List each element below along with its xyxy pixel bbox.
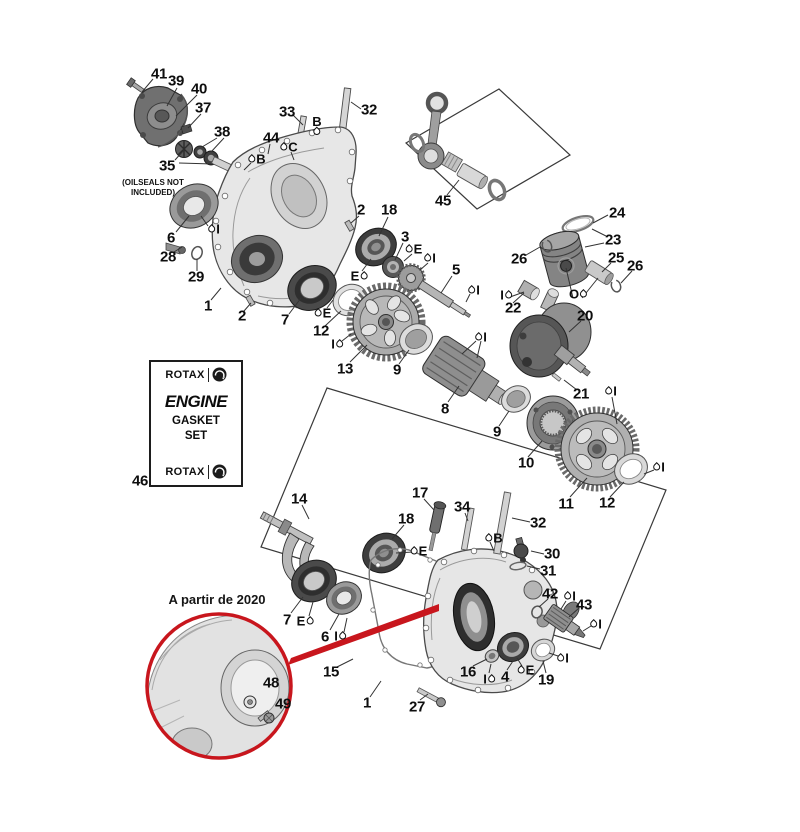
part-label-23: 23 bbox=[605, 232, 621, 249]
lube-mark-B: B bbox=[248, 153, 265, 166]
oil-drop-icon bbox=[467, 285, 477, 295]
lube-letter: C bbox=[288, 141, 297, 154]
oil-drop-icon bbox=[579, 289, 589, 299]
rod-shaft bbox=[428, 111, 441, 146]
part-label-40: 40 bbox=[191, 81, 207, 98]
oil-drop-icon bbox=[484, 533, 494, 543]
divider bbox=[208, 465, 209, 479]
part-label-38: 38 bbox=[214, 124, 230, 141]
lube-mark-I: I bbox=[653, 461, 665, 474]
part-label-44: 44 bbox=[263, 130, 279, 147]
lube-mark-I: I bbox=[564, 590, 576, 603]
oil-drop-icon bbox=[486, 674, 496, 684]
part-label-20: 20 bbox=[577, 308, 593, 325]
part-label-18: 18 bbox=[381, 202, 397, 219]
oil-drop-icon bbox=[359, 271, 369, 281]
lube-letter: B bbox=[493, 532, 502, 545]
part-label-25: 25 bbox=[608, 250, 624, 267]
lube-letter: E bbox=[323, 307, 332, 320]
part-label-4: 4 bbox=[501, 669, 509, 686]
lube-mark-E: E bbox=[411, 545, 428, 558]
oil-drop-icon bbox=[305, 616, 315, 626]
lube-letter: E bbox=[419, 545, 428, 558]
lube-mark-E: E bbox=[406, 243, 423, 256]
pushrod-17 bbox=[424, 501, 446, 552]
part-label-34: 34 bbox=[454, 499, 470, 516]
crank-pin bbox=[456, 163, 489, 190]
lube-letter: I bbox=[216, 223, 220, 236]
lube-letter: O bbox=[569, 288, 579, 301]
oil-drop-icon bbox=[334, 339, 344, 349]
oil-drop-icon bbox=[313, 308, 323, 318]
part-label-5: 5 bbox=[452, 262, 460, 279]
oil-drop-icon bbox=[423, 253, 433, 263]
lube-letter: I bbox=[598, 618, 602, 631]
lube-mark-I: I bbox=[557, 652, 569, 665]
oil-drop-icon bbox=[337, 631, 347, 641]
part-label-7: 7 bbox=[281, 312, 289, 329]
lube-letter: I bbox=[483, 331, 487, 344]
part-label-15: 15 bbox=[323, 664, 339, 681]
thrust-washer-left bbox=[408, 132, 426, 153]
part-label-48: 48 bbox=[263, 675, 279, 692]
part-label-1: 1 bbox=[204, 298, 212, 315]
lube-mark-C: C bbox=[280, 141, 297, 154]
gasket-box-footer: ROTAX bbox=[154, 464, 238, 479]
part-label-22: 22 bbox=[505, 300, 521, 317]
oilseals-note-line1: (OILSEALS NOT bbox=[106, 178, 200, 188]
part-label-16: 16 bbox=[460, 664, 476, 681]
gasket-set-kit-card: ROTAX ENGINE GASKET SET ROTAX bbox=[149, 360, 243, 487]
part-label-35: 35 bbox=[159, 158, 175, 175]
lube-letter: I bbox=[334, 630, 338, 643]
part-label-6: 6 bbox=[321, 629, 329, 646]
part-label-33: 33 bbox=[279, 104, 295, 121]
woodruff-key-21 bbox=[552, 373, 561, 381]
part-label-18: 18 bbox=[398, 511, 414, 528]
lube-mark-E: E bbox=[351, 270, 368, 283]
part-label-7: 7 bbox=[283, 612, 291, 629]
lube-letter: E bbox=[297, 615, 306, 628]
part-label-32: 32 bbox=[361, 102, 377, 119]
lube-letter: E bbox=[526, 664, 535, 677]
divider bbox=[208, 368, 209, 382]
part-label-17: 17 bbox=[412, 485, 428, 502]
part-label-27: 27 bbox=[409, 699, 425, 716]
gasket-kit-subtitle2: SET bbox=[185, 430, 207, 442]
detail-pointer-line bbox=[288, 604, 439, 665]
lube-letter: I bbox=[331, 338, 335, 351]
cover-center bbox=[155, 110, 169, 122]
oil-drop-icon bbox=[409, 546, 419, 556]
lube-mark-I: I bbox=[500, 289, 512, 302]
part-label-12: 12 bbox=[313, 323, 329, 340]
lube-letter: I bbox=[572, 590, 576, 603]
lube-mark-E: E bbox=[315, 307, 332, 320]
lube-letter: I bbox=[500, 289, 504, 302]
lube-mark-O: O bbox=[569, 288, 587, 301]
part-label-32: 32 bbox=[530, 515, 546, 532]
lube-letter: I bbox=[476, 284, 480, 297]
gasket-box-header: ROTAX bbox=[154, 367, 238, 382]
part-label-39: 39 bbox=[168, 73, 184, 90]
lube-mark-E: E bbox=[297, 615, 314, 628]
part-label-14: 14 bbox=[291, 491, 307, 508]
lube-mark-I: I bbox=[468, 284, 480, 297]
part-label-49: 49 bbox=[275, 696, 291, 713]
oilseals-note: (OILSEALS NOT INCLUDED) bbox=[106, 178, 200, 198]
lube-mark-I: I bbox=[590, 618, 602, 631]
part-label-13: 13 bbox=[337, 361, 353, 378]
lube-mark-I: I bbox=[424, 252, 436, 265]
part-label-29: 29 bbox=[188, 269, 204, 286]
part-label-9: 9 bbox=[493, 424, 501, 441]
lube-mark-I: I bbox=[475, 331, 487, 344]
part-label-43: 43 bbox=[576, 597, 592, 614]
part-label-9: 9 bbox=[393, 362, 401, 379]
rotax-logo-icon bbox=[212, 464, 227, 479]
rotax-logo-icon bbox=[212, 367, 227, 382]
lube-letter: E bbox=[414, 243, 423, 256]
needle-bearing bbox=[442, 152, 463, 172]
part-label-26: 26 bbox=[511, 251, 527, 268]
part-label-8: 8 bbox=[441, 401, 449, 418]
year-applicability-note: A partir de 2020 bbox=[156, 592, 278, 607]
oil-drop-icon bbox=[247, 154, 257, 164]
gasket-kit-title: ENGINE bbox=[165, 392, 227, 412]
part-label-12: 12 bbox=[599, 495, 615, 512]
crank-bore-hub bbox=[249, 252, 265, 266]
part-label-21: 21 bbox=[573, 386, 589, 403]
lube-letter: I bbox=[565, 652, 569, 665]
lube-letter: I bbox=[661, 461, 665, 474]
oil-drop-icon bbox=[207, 224, 217, 234]
exploded-parts-drawing bbox=[0, 0, 800, 832]
pump-bearing-a-bore bbox=[197, 149, 203, 155]
part-label-10: 10 bbox=[518, 455, 534, 472]
oil-drop-icon bbox=[516, 665, 526, 675]
o-ring-29 bbox=[190, 245, 204, 261]
lube-letter: B bbox=[256, 153, 265, 166]
part-label-1: 1 bbox=[363, 695, 371, 712]
lube-letter: E bbox=[351, 270, 360, 283]
oil-drop-icon bbox=[563, 591, 573, 601]
oil-drop-icon bbox=[604, 386, 614, 396]
oil-drop-icon bbox=[652, 462, 662, 472]
crankshaft-20 bbox=[510, 287, 592, 381]
part-label-45: 45 bbox=[435, 193, 451, 210]
part-label-2: 2 bbox=[238, 308, 246, 325]
part-label-31: 31 bbox=[540, 563, 556, 580]
connecting-rod-kit bbox=[408, 94, 508, 202]
lube-mark-I: I bbox=[331, 338, 343, 351]
piston-23 bbox=[538, 228, 591, 291]
parts-diagram-page: ROTAX ENGINE GASKET SET ROTAX (OILSEALS … bbox=[0, 0, 800, 832]
part-label-6: 6 bbox=[167, 230, 175, 247]
oil-drop-icon bbox=[474, 332, 484, 342]
lube-mark-I: I bbox=[208, 223, 220, 236]
lube-mark-B: B bbox=[485, 532, 502, 545]
part-label-24: 24 bbox=[609, 205, 625, 222]
part-label-11: 11 bbox=[558, 496, 573, 513]
oil-drop-icon bbox=[556, 653, 566, 663]
oil-drop-icon bbox=[404, 244, 414, 254]
part-label-26: 26 bbox=[627, 258, 643, 275]
oilseals-note-line2: INCLUDED) bbox=[106, 188, 200, 198]
part-label-2: 2 bbox=[357, 202, 365, 219]
lube-mark-I: I bbox=[605, 385, 617, 398]
part-label-37: 37 bbox=[195, 100, 211, 117]
oil-drop-icon bbox=[279, 142, 289, 152]
lube-mark-I: I bbox=[334, 630, 346, 643]
rotax-wordmark: ROTAX bbox=[165, 369, 204, 381]
lube-letter: I bbox=[432, 252, 436, 265]
lube-mark-E: E bbox=[518, 664, 535, 677]
lube-mark-B: B bbox=[312, 115, 321, 135]
part-label-28: 28 bbox=[160, 249, 176, 266]
lube-letter: I bbox=[613, 385, 617, 398]
rotax-wordmark: ROTAX bbox=[165, 466, 204, 478]
part-label-30: 30 bbox=[544, 546, 560, 563]
lube-mark-I: I bbox=[483, 673, 495, 686]
part-label-46: 46 bbox=[132, 473, 148, 490]
part-label-41: 41 bbox=[151, 66, 167, 83]
part-label-42: 42 bbox=[542, 586, 558, 603]
oil-drop-icon bbox=[503, 290, 513, 300]
lube-letter: I bbox=[483, 673, 487, 686]
part-label-19: 19 bbox=[538, 672, 554, 689]
thrust-washer-right bbox=[486, 178, 507, 202]
rod-small-end bbox=[428, 94, 446, 112]
bushing-22 bbox=[518, 280, 541, 301]
gasket-kit-subtitle: GASKET bbox=[172, 415, 220, 427]
oil-drop-icon bbox=[589, 619, 599, 629]
